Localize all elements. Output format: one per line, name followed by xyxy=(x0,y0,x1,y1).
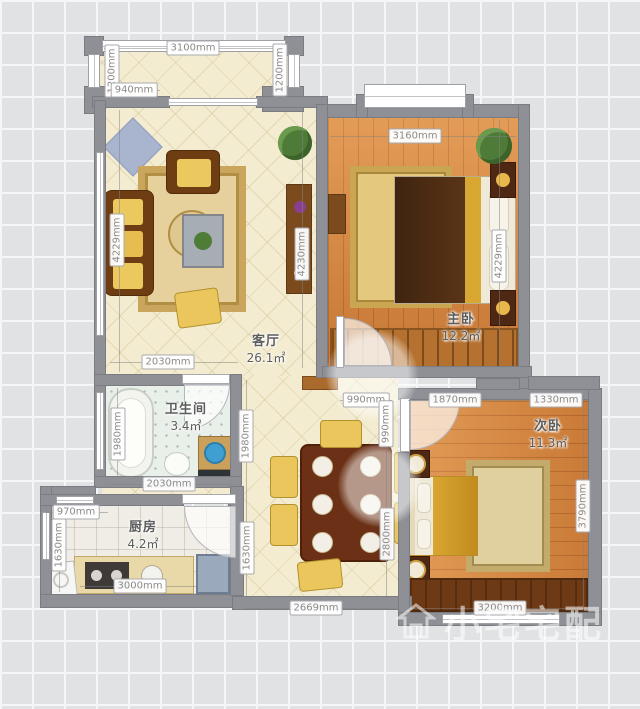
dining-chair xyxy=(270,456,298,498)
plant xyxy=(278,126,312,160)
dining-chair xyxy=(270,504,298,546)
sink-bowl xyxy=(204,442,226,464)
dimension-label: 990mm xyxy=(379,401,394,448)
second-bedroom-window xyxy=(442,614,560,624)
room-area: 3.4㎡ xyxy=(165,417,207,434)
plate xyxy=(312,456,333,477)
side-cabinet xyxy=(328,194,346,234)
plate xyxy=(312,532,333,553)
sofa-cushion xyxy=(113,263,143,289)
dimension-label: 2030mm xyxy=(142,355,195,370)
plate xyxy=(360,532,381,553)
master-bay-window xyxy=(364,84,466,108)
bed-blanket xyxy=(433,477,477,555)
balcony-slider xyxy=(168,98,258,106)
washer-drum xyxy=(52,571,70,589)
second-rug xyxy=(466,460,550,572)
floor-plan: 小宅宅配 3100mm1200mm940mm1200mm3160mm4229mm… xyxy=(0,0,640,709)
wall xyxy=(316,104,328,378)
dimension-label: 3790mm xyxy=(576,480,591,533)
nightstand xyxy=(490,162,516,198)
dimension-label: 4229mm xyxy=(492,230,507,283)
dimension-label: 970mm xyxy=(53,505,100,520)
plant xyxy=(476,128,512,164)
dimension-label: 1630mm xyxy=(52,519,67,572)
room-label-second-bedroom: 次卧11.3㎡ xyxy=(529,415,568,451)
plate xyxy=(360,456,381,477)
living-window xyxy=(96,152,104,336)
room-name: 厨房 xyxy=(127,516,158,535)
nightstand xyxy=(490,290,516,326)
dimension-label: 1980mm xyxy=(239,410,254,463)
armchair xyxy=(166,150,220,194)
dimension-label: 4229mm xyxy=(110,214,125,267)
dimension-label: 2800mm xyxy=(380,508,395,561)
room-area: 11.3㎡ xyxy=(529,434,568,451)
wall xyxy=(322,366,532,378)
balcony-side-window xyxy=(88,54,100,88)
kitchen-top-window xyxy=(56,496,94,504)
dimension-label: 2669mm xyxy=(290,601,343,616)
bathroom-window xyxy=(96,392,104,470)
flower-vase xyxy=(294,201,306,213)
bed-blanket xyxy=(395,177,465,303)
dimension-label: 1870mm xyxy=(429,393,482,408)
master-door-leaf xyxy=(336,316,344,368)
bed-pillow xyxy=(417,519,431,549)
balcony-side-window xyxy=(288,54,300,88)
room-area: 26.1㎡ xyxy=(247,349,286,366)
dimension-label: 1200mm xyxy=(273,44,288,97)
vanity-sink xyxy=(198,436,232,470)
dining-chair xyxy=(297,558,344,592)
wall xyxy=(40,594,242,608)
plate xyxy=(360,494,381,515)
dimension-label: 3200mm xyxy=(474,601,527,616)
wall xyxy=(398,452,410,626)
dimension-label: 1980mm xyxy=(111,408,126,461)
dimension-label: 2030mm xyxy=(143,477,196,492)
bathroom-door-leaf xyxy=(182,374,230,384)
second-bedroom-door-leaf xyxy=(400,398,410,452)
table-plant xyxy=(194,232,212,250)
second-bed xyxy=(406,476,478,556)
room-name: 主卧 xyxy=(442,308,481,327)
dining-table xyxy=(300,444,392,562)
dimension-label: 1330mm xyxy=(530,393,583,408)
fridge xyxy=(196,554,230,594)
room-area: 12.2㎡ xyxy=(442,327,481,344)
dimension-label: 3000mm xyxy=(114,579,167,594)
room-label-kitchen: 厨房4.2㎡ xyxy=(127,516,158,552)
room-name: 卫生间 xyxy=(165,398,207,417)
room-area: 4.2㎡ xyxy=(127,535,158,552)
accent-chair xyxy=(174,287,223,329)
dimension-label: 1630mm xyxy=(240,522,255,575)
wall xyxy=(528,376,600,390)
bed-gold-band xyxy=(465,177,481,303)
dimension-label: 4230mm xyxy=(295,228,310,281)
plate xyxy=(312,494,333,515)
room-name: 次卧 xyxy=(529,415,568,434)
coffee-table xyxy=(182,214,224,268)
bed-pillow xyxy=(417,483,431,513)
wall xyxy=(476,378,520,390)
room-label-master-bedroom: 主卧12.2㎡ xyxy=(442,308,481,344)
dining-chair xyxy=(320,420,362,448)
dimension-label: 3160mm xyxy=(389,129,442,144)
wall xyxy=(84,36,104,56)
hall-cabinet xyxy=(302,376,338,390)
armchair-cushion xyxy=(177,159,211,187)
kitchen-window xyxy=(42,512,50,560)
toilet xyxy=(164,452,190,476)
dimension-label: 3100mm xyxy=(167,41,220,56)
room-label-bathroom: 卫生间3.4㎡ xyxy=(165,398,207,434)
wall xyxy=(518,104,530,390)
kitchen-door-leaf xyxy=(182,494,236,504)
burner xyxy=(91,570,102,581)
dimension-label: 940mm xyxy=(111,83,158,98)
room-name: 客厅 xyxy=(247,330,286,349)
room-label-living-room: 客厅26.1㎡ xyxy=(247,330,286,366)
